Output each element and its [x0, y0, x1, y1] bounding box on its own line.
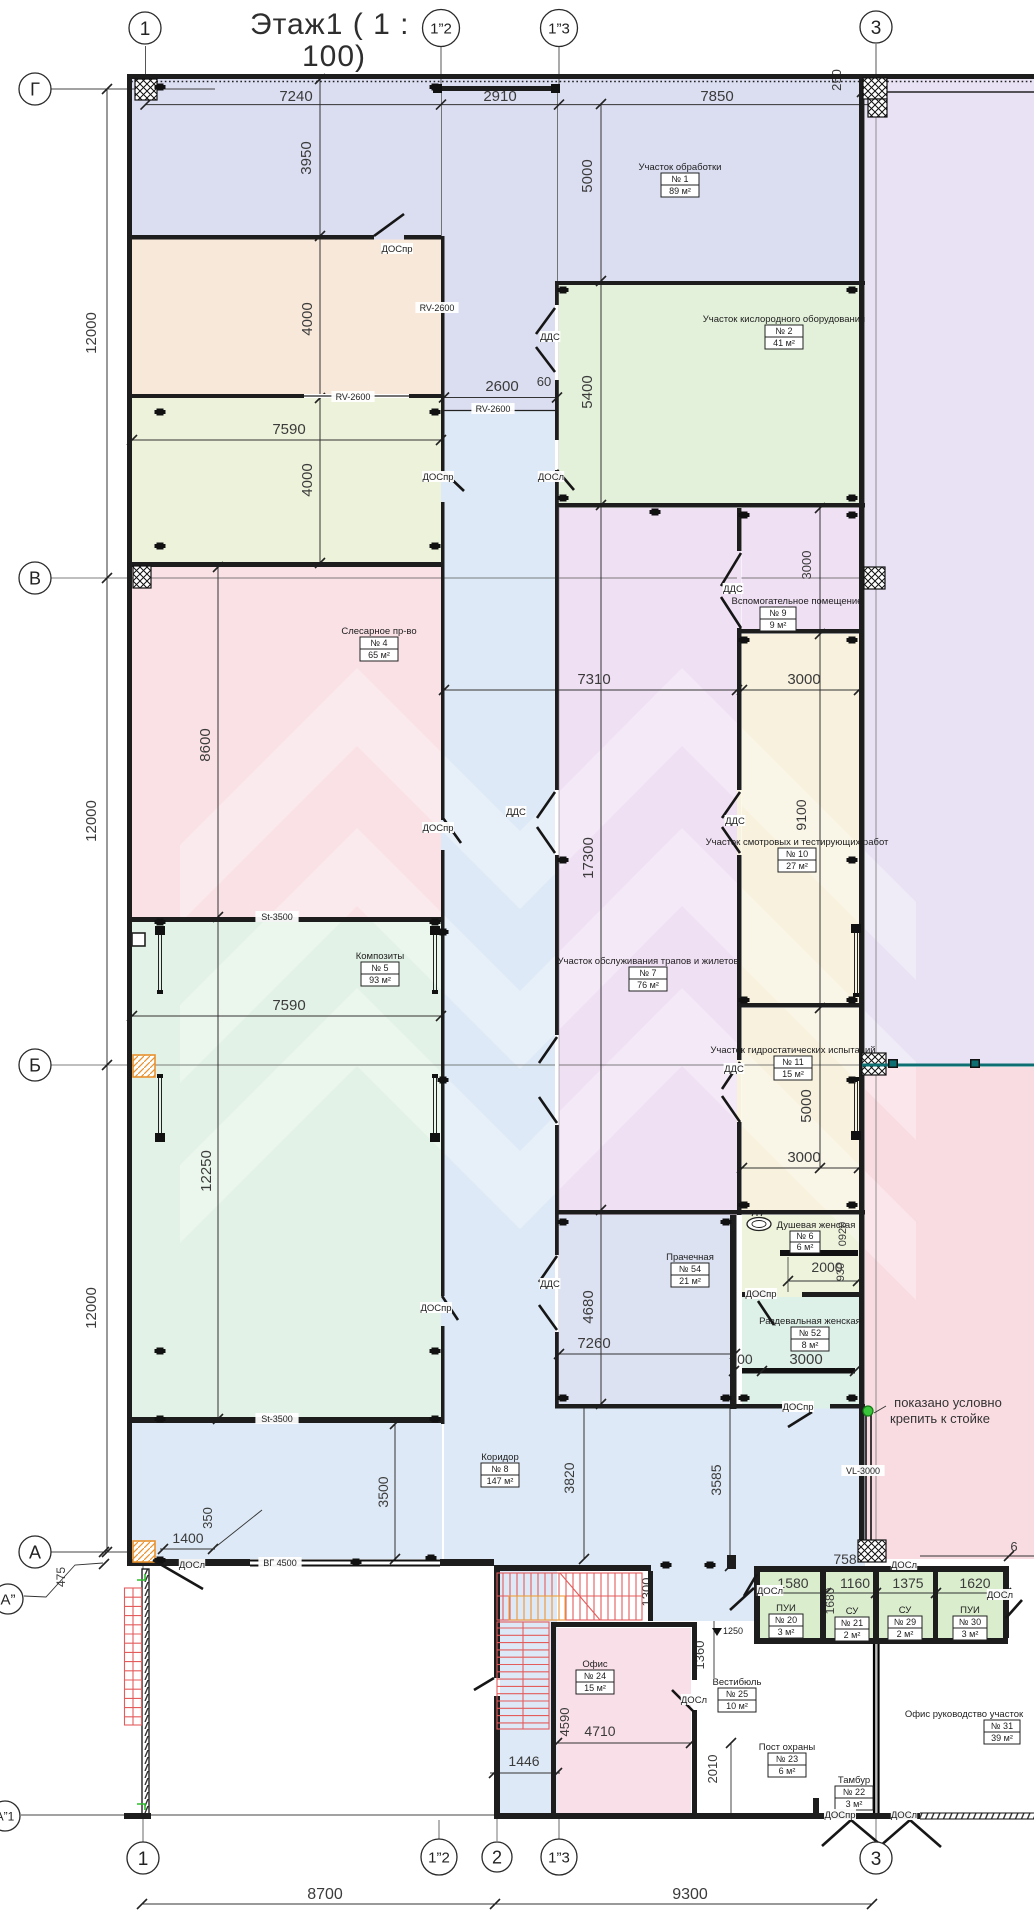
svg-text:ДОСпр: ДОСпр — [824, 1810, 855, 1821]
svg-text:№ 24: № 24 — [584, 1671, 606, 1681]
svg-text:№ 54: № 54 — [679, 1264, 701, 1274]
svg-text:СУ: СУ — [846, 1606, 860, 1617]
svg-text:1446: 1446 — [508, 1753, 539, 1769]
svg-text:3000: 3000 — [789, 1351, 822, 1368]
svg-text:930: 930 — [835, 1263, 847, 1281]
svg-text:4000: 4000 — [299, 463, 316, 496]
svg-text:ДДС: ДДС — [506, 807, 526, 818]
svg-text:ДДС: ДДС — [725, 816, 745, 827]
svg-text:3000: 3000 — [787, 671, 820, 688]
svg-text:Коридор: Коридор — [481, 1452, 519, 1463]
svg-text:Г: Г — [30, 79, 40, 99]
svg-text:3000: 3000 — [787, 1149, 820, 1166]
svg-text:3 м²: 3 м² — [846, 1799, 863, 1809]
svg-text:крепить к стойке: крепить к стойке — [890, 1411, 990, 1426]
svg-text:1”2: 1”2 — [428, 1849, 450, 1866]
svg-text:Вспомогательное помещение: Вспомогательное помещение — [732, 596, 863, 607]
svg-text:№ 31: № 31 — [991, 1721, 1013, 1731]
svg-text:ДОСл: ДОСл — [891, 1810, 917, 1821]
svg-text:3000: 3000 — [799, 551, 814, 580]
svg-text:4680: 4680 — [580, 1290, 597, 1323]
svg-text:ДДС: ДДС — [540, 1279, 560, 1290]
svg-text:27 м²: 27 м² — [786, 861, 808, 871]
svg-text:Офис руководство участок: Офис руководство участок — [905, 1709, 1024, 1720]
svg-text:2 м²: 2 м² — [897, 1629, 914, 1639]
svg-text:А: А — [29, 1542, 41, 1562]
svg-text:1”3: 1”3 — [548, 20, 570, 37]
svg-text:№ 52: № 52 — [799, 1328, 821, 1338]
svg-text:3820: 3820 — [561, 1462, 577, 1493]
svg-text:758: 758 — [833, 1551, 857, 1567]
svg-text:3 м²: 3 м² — [962, 1629, 979, 1639]
svg-text:ДОСл: ДОСл — [681, 1695, 707, 1706]
svg-text:15 м²: 15 м² — [584, 1683, 606, 1693]
svg-text:ДОСпр: ДОСпр — [782, 1402, 813, 1413]
svg-text:93 м²: 93 м² — [369, 975, 391, 985]
svg-text:9 м²: 9 м² — [770, 620, 787, 630]
svg-text:RV-2600: RV-2600 — [420, 303, 455, 313]
svg-text:ДДС: ДДС — [723, 584, 743, 595]
svg-text:ДДС: ДДС — [724, 1064, 744, 1075]
svg-text:VL-3000: VL-3000 — [846, 1466, 880, 1476]
svg-text:Душевая женская: Душевая женская — [777, 1220, 856, 1231]
svg-text:60: 60 — [537, 374, 551, 389]
svg-text:1”3: 1”3 — [548, 1849, 570, 1866]
svg-text:№ 1: № 1 — [671, 174, 688, 184]
svg-text:3585: 3585 — [708, 1464, 724, 1495]
svg-text:4000: 4000 — [299, 302, 316, 335]
svg-text:250: 250 — [829, 69, 844, 91]
svg-text:39 м²: 39 м² — [991, 1733, 1013, 1743]
svg-text:Участок смотровых и тестирующи: Участок смотровых и тестирующих работ — [706, 837, 889, 848]
svg-text:3 м²: 3 м² — [778, 1627, 795, 1637]
svg-text:12000: 12000 — [83, 800, 100, 842]
svg-text:ПУИ: ПУИ — [960, 1605, 980, 1616]
svg-text:St-3500: St-3500 — [261, 1414, 293, 1424]
svg-text:12000: 12000 — [83, 312, 100, 354]
svg-text:Прачечная: Прачечная — [666, 1252, 714, 1263]
svg-text:65 м²: 65 м² — [368, 650, 390, 660]
svg-text:№ 29: № 29 — [894, 1617, 916, 1627]
svg-text:показано условно: показано условно — [894, 1395, 1002, 1410]
svg-text:№ 7: № 7 — [639, 968, 656, 978]
svg-text:1: 1 — [140, 19, 151, 40]
svg-text:1: 1 — [138, 1849, 149, 1870]
svg-text:3: 3 — [871, 18, 882, 39]
svg-text:4710: 4710 — [584, 1723, 615, 1739]
svg-text:3: 3 — [871, 1849, 882, 1870]
svg-text:12250: 12250 — [198, 1150, 215, 1192]
svg-text:350: 350 — [200, 1507, 215, 1529]
svg-text:А”1: А”1 — [0, 1809, 15, 1823]
svg-text:7850: 7850 — [700, 88, 733, 105]
svg-text:ДОСл: ДОСл — [757, 1586, 783, 1597]
svg-text:№ 11: № 11 — [782, 1057, 804, 1067]
svg-text:15 м²: 15 м² — [782, 1069, 804, 1079]
svg-text:№ 25: № 25 — [726, 1689, 748, 1699]
svg-text:Участок кислородного оборудова: Участок кислородного оборудования — [703, 314, 865, 325]
svg-text:RV-2600: RV-2600 — [336, 392, 371, 402]
svg-text:Участок обработки: Участок обработки — [639, 162, 722, 173]
svg-text:8 м²: 8 м² — [802, 1340, 819, 1350]
svg-text:№ 5: № 5 — [371, 963, 388, 973]
svg-text:5000: 5000 — [579, 159, 596, 192]
svg-text:№ 30: № 30 — [959, 1617, 981, 1627]
svg-text:ДОСпр: ДОСпр — [420, 1303, 451, 1314]
svg-text:Офис: Офис — [582, 1659, 608, 1670]
svg-text:1250: 1250 — [723, 1626, 743, 1636]
svg-text:100): 100) — [302, 40, 366, 73]
svg-text:St-3500: St-3500 — [261, 912, 293, 922]
svg-text:ДОСл: ДОСл — [179, 1560, 205, 1571]
svg-text:Участок обслуживания трапов и: Участок обслуживания трапов и жилетов — [557, 956, 738, 967]
svg-text:7310: 7310 — [577, 671, 610, 688]
svg-text:№ 23: № 23 — [776, 1754, 798, 1764]
svg-text:ДОСпр: ДОСпр — [381, 244, 412, 255]
svg-text:6 м²: 6 м² — [779, 1766, 796, 1776]
svg-text:В: В — [29, 568, 41, 588]
svg-text:№ 9: № 9 — [769, 608, 786, 618]
svg-text:№ 6: № 6 — [796, 1231, 813, 1241]
svg-text:89 м²: 89 м² — [669, 186, 691, 196]
svg-text:2010: 2010 — [705, 1755, 720, 1784]
svg-text:41 м²: 41 м² — [773, 338, 795, 348]
svg-text:9100: 9100 — [793, 799, 809, 830]
svg-text:1620: 1620 — [959, 1575, 990, 1591]
svg-text:Композиты: Композиты — [356, 951, 405, 962]
svg-text:2600: 2600 — [485, 378, 518, 395]
svg-text:12000: 12000 — [83, 1287, 100, 1329]
svg-text:Этаж1 ( 1 :: Этаж1 ( 1 : — [250, 8, 409, 41]
svg-text:5400: 5400 — [579, 375, 596, 408]
svg-text:Пост охраны: Пост охраны — [759, 1742, 816, 1753]
svg-text:3500: 3500 — [375, 1476, 391, 1507]
svg-text:2: 2 — [492, 1847, 502, 1867]
svg-text:6: 6 — [1010, 1539, 1017, 1554]
svg-text:Вестибюль: Вестибюль — [713, 1677, 762, 1688]
svg-text:7260: 7260 — [577, 1335, 610, 1352]
svg-text:№ 4: № 4 — [370, 638, 387, 648]
svg-text:475: 475 — [54, 1567, 68, 1587]
svg-text:Тамбур: Тамбур — [838, 1775, 870, 1786]
svg-text:7590: 7590 — [272, 421, 305, 438]
svg-text:2 м²: 2 м² — [844, 1630, 861, 1640]
svg-text:5000: 5000 — [798, 1089, 815, 1122]
svg-text:№ 10: № 10 — [786, 849, 808, 859]
svg-text:№ 2: № 2 — [775, 326, 792, 336]
svg-text:Слесарное пр-во: Слесарное пр-во — [341, 626, 416, 637]
svg-text:ДДС: ДДС — [540, 332, 560, 343]
svg-text:1160: 1160 — [840, 1575, 870, 1591]
svg-text:ПУИ: ПУИ — [776, 1603, 796, 1614]
svg-text:ДОСпр: ДОСпр — [422, 472, 453, 483]
svg-text:А”: А” — [1, 1591, 16, 1608]
svg-text:6 м²: 6 м² — [797, 1242, 814, 1252]
svg-text:1”2: 1”2 — [430, 20, 452, 37]
svg-text:Раздевальная женская: Раздевальная женская — [759, 1316, 861, 1327]
svg-text:1375: 1375 — [892, 1575, 923, 1591]
svg-text:Участок гидростатических испыт: Участок гидростатических испытаний — [710, 1045, 875, 1056]
svg-text:76 м²: 76 м² — [637, 980, 659, 990]
svg-text:7240: 7240 — [279, 88, 312, 105]
svg-text:Б: Б — [29, 1055, 41, 1075]
svg-text:ДОСл: ДОСл — [538, 472, 564, 483]
svg-text:ДОСпр: ДОСпр — [745, 1289, 776, 1300]
svg-text:147 м²: 147 м² — [487, 1476, 514, 1486]
svg-text:№ 8: № 8 — [491, 1464, 508, 1474]
svg-text:3950: 3950 — [298, 141, 315, 174]
svg-text:9300: 9300 — [672, 1886, 708, 1903]
svg-text:ДОСл: ДОСл — [987, 1590, 1013, 1601]
svg-text:RV-2600: RV-2600 — [476, 404, 511, 414]
svg-text:7590: 7590 — [272, 997, 305, 1014]
svg-text:ВГ 4500: ВГ 4500 — [263, 1558, 296, 1568]
svg-text:№ 22: № 22 — [843, 1787, 865, 1797]
svg-text:1400: 1400 — [172, 1530, 203, 1546]
svg-text:ДОСпр: ДОСпр — [422, 823, 453, 834]
svg-text:№ 20: № 20 — [775, 1615, 797, 1625]
svg-text:21 м²: 21 м² — [679, 1276, 701, 1286]
svg-text:8700: 8700 — [307, 1886, 343, 1903]
svg-text:10 м²: 10 м² — [726, 1701, 748, 1711]
svg-text:8600: 8600 — [197, 728, 214, 761]
svg-text:ДОСл: ДОСл — [891, 1560, 917, 1571]
svg-text:№ 21: № 21 — [841, 1618, 863, 1628]
svg-text:СУ: СУ — [899, 1605, 913, 1616]
svg-text:4590: 4590 — [557, 1708, 572, 1737]
svg-text:17300: 17300 — [580, 837, 597, 879]
